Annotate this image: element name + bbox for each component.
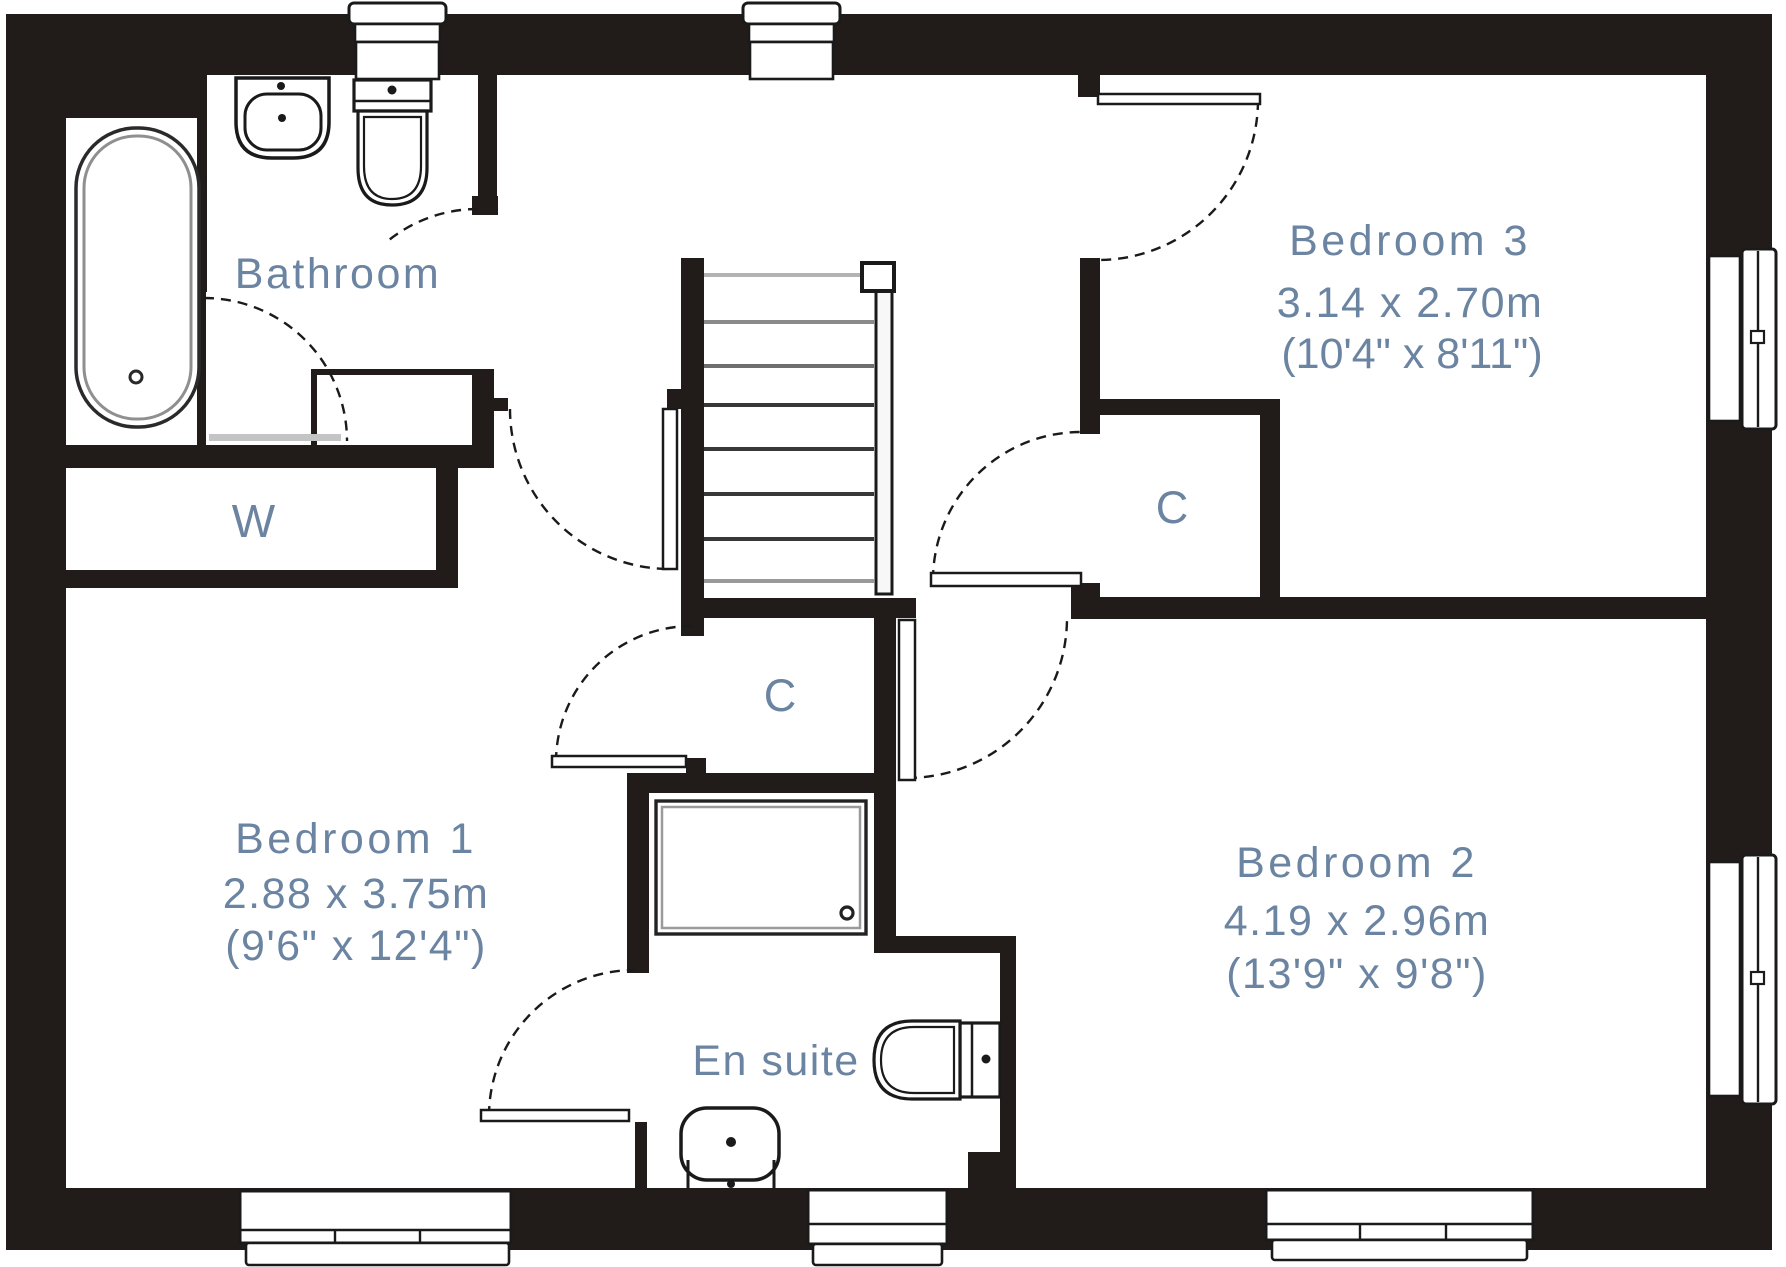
svg-text:3.14 x 2.70m: 3.14 x 2.70m xyxy=(1277,279,1544,327)
svg-text:Bathroom: Bathroom xyxy=(235,250,441,298)
svg-text:(10'4" x 8'11"): (10'4" x 8'11") xyxy=(1281,330,1542,378)
svg-text:C: C xyxy=(1156,482,1189,533)
svg-text:2.88 x 3.75m: 2.88 x 3.75m xyxy=(223,870,490,918)
svg-text:Bedroom 2: Bedroom 2 xyxy=(1236,839,1478,887)
svg-text:C: C xyxy=(764,670,797,721)
svg-text:Bedroom 1: Bedroom 1 xyxy=(235,815,477,863)
svg-text:En suite: En suite xyxy=(692,1037,859,1085)
svg-text:Bedroom 3: Bedroom 3 xyxy=(1289,217,1531,265)
svg-text:W: W xyxy=(232,495,276,547)
svg-text:(13'9" x 9'8"): (13'9" x 9'8") xyxy=(1226,950,1488,998)
svg-text:(9'6" x 12'4"): (9'6" x 12'4") xyxy=(225,922,487,970)
svg-text:4.19 x 2.96m: 4.19 x 2.96m xyxy=(1224,897,1491,945)
